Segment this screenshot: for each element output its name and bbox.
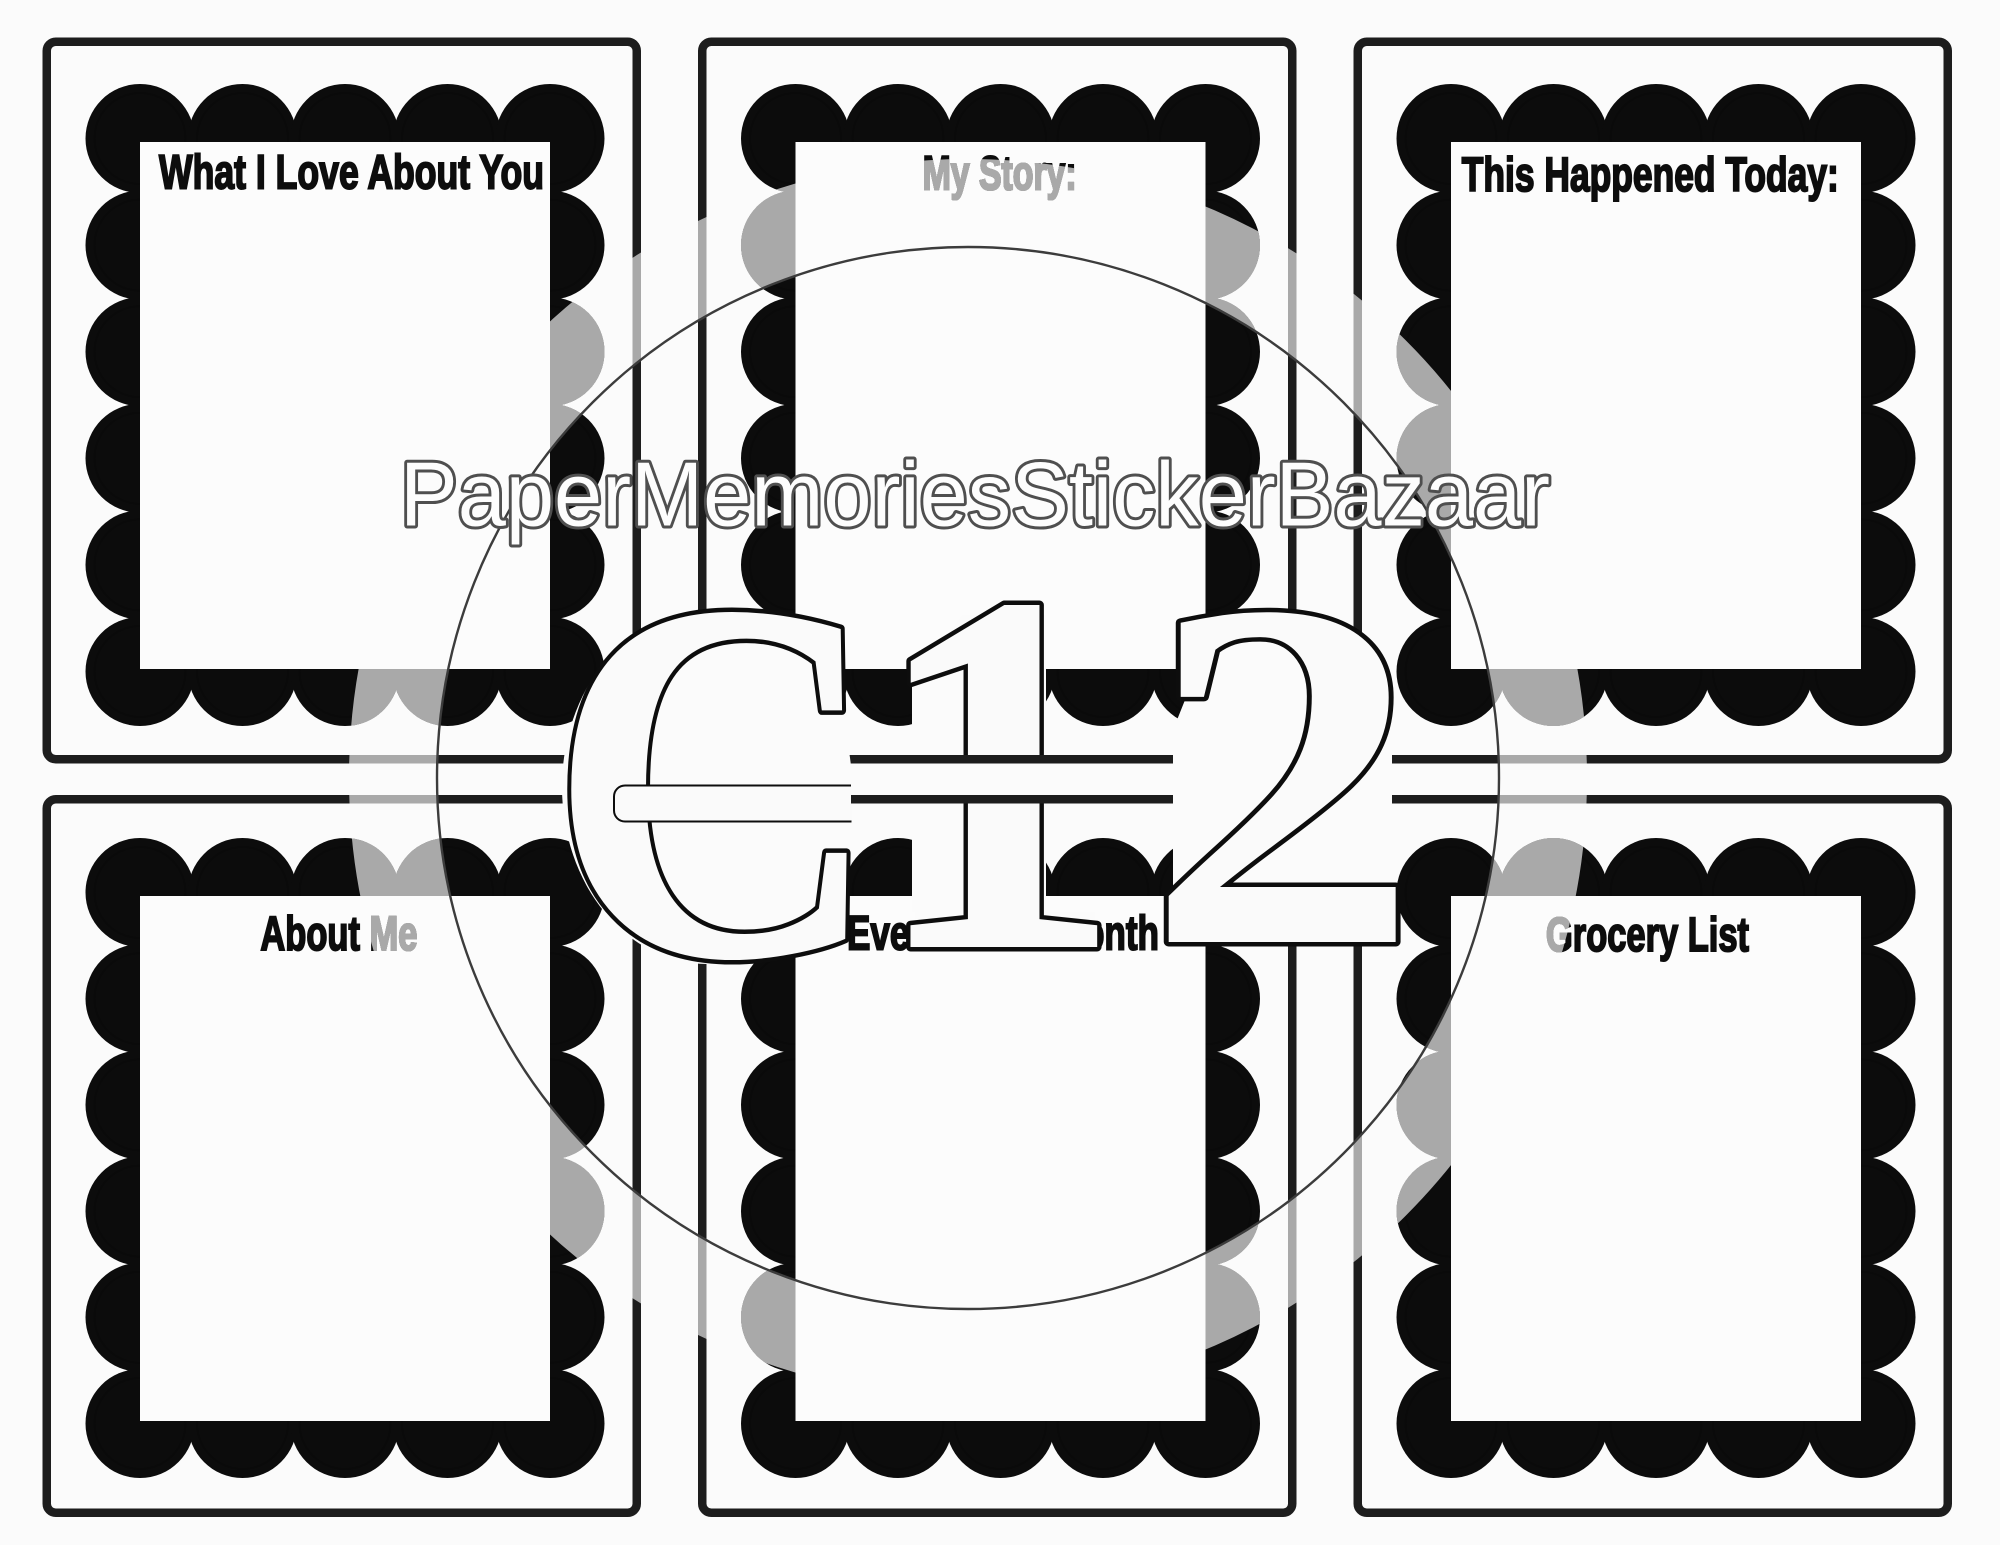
svg-text:This Happened Today:: This Happened Today: bbox=[1462, 149, 1839, 202]
svg-text:Grocery List: Grocery List bbox=[1546, 909, 1749, 962]
svg-text:C: C bbox=[549, 494, 882, 1068]
svg-text:2: 2 bbox=[1146, 499, 1419, 1050]
svg-text:What I Love About You: What I Love About You bbox=[159, 146, 544, 199]
